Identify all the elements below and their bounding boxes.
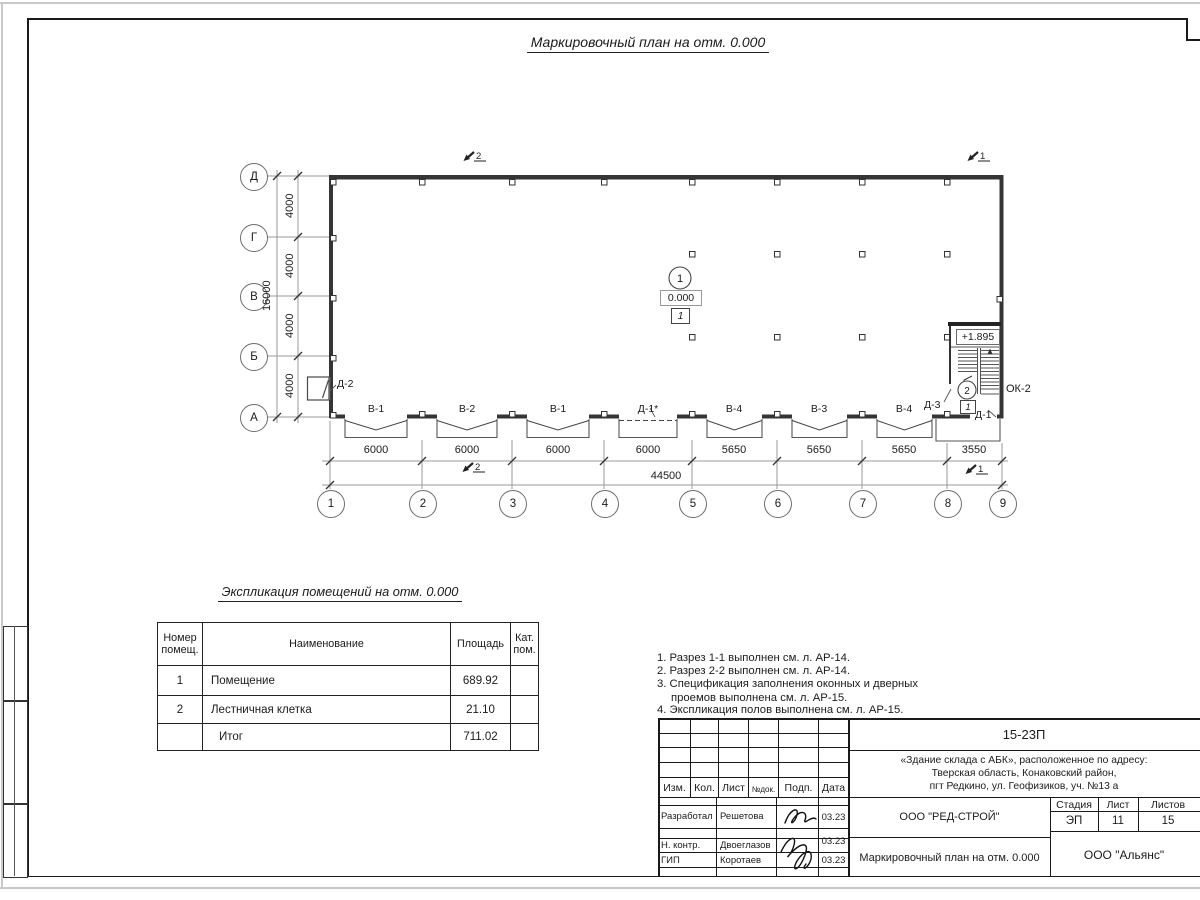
tb-name: Коротаев	[720, 855, 761, 866]
room1-elevation: 0.000	[660, 290, 702, 306]
dim-total-label: 44500	[636, 470, 696, 482]
tb-address-line1: «Здание склада с АБК», расположенное по …	[850, 755, 1198, 766]
table-row: 2 Лестничная клетка 21.10	[158, 696, 539, 724]
tb-sheets-value: 15	[1139, 815, 1197, 827]
opening-label: В-3	[789, 403, 849, 415]
cell-number: 2	[158, 696, 203, 724]
svg-text:2: 2	[476, 151, 481, 162]
cell-name: Лестничная клетка	[203, 696, 451, 724]
tb-address-line2: Тверская область, Конаковский район,	[850, 768, 1198, 779]
svg-text:2: 2	[964, 386, 970, 397]
drawing-sheet: Маркировочный план на отм. 0.000	[0, 0, 1200, 900]
tb-col-podp: Подп.	[779, 782, 818, 794]
cell-number	[158, 724, 203, 751]
axis-bubble-2: 2	[409, 490, 437, 518]
door-label-d1: Д-1	[975, 409, 991, 421]
room2-floor-tag: 1	[960, 400, 976, 414]
cell-area: 711.02	[451, 724, 511, 751]
opening-label: Д-1*	[618, 403, 678, 415]
axis-bubble-a: А	[240, 404, 268, 432]
axis-bubble-4: 4	[591, 490, 619, 518]
svg-text:1: 1	[677, 273, 683, 285]
svg-text:1: 1	[978, 464, 983, 475]
explication-title: Экспликация помещений на отм. 0.000	[165, 583, 515, 601]
tb-org-design: ООО "РЕД-СТРОЙ"	[850, 811, 1049, 823]
tb-sheet-label: Лист	[1099, 799, 1137, 811]
table-row: 1 Помещение 689.92	[158, 666, 539, 696]
column-header: Кат. пом.	[511, 623, 539, 666]
door-label-d2: Д-2	[337, 378, 353, 390]
axis-bubble-b: Б	[240, 343, 268, 371]
dim-label: 5650	[874, 444, 934, 456]
cell-area: 21.10	[451, 696, 511, 724]
tb-col-ndok: №док.	[749, 785, 778, 794]
note-item: 2. Разрез 2-2 выполнен см. л. АР-14.	[657, 665, 933, 679]
dimension-ticks	[273, 172, 1006, 489]
axis-bubble-3: 3	[499, 490, 527, 518]
cell-area: 689.92	[451, 666, 511, 696]
dim-label: 4000	[284, 356, 296, 416]
dim-label: 3550	[944, 444, 1004, 456]
dim-label: 6000	[437, 444, 497, 456]
tb-date: 03.23	[819, 855, 848, 866]
window-label-ok2: ОК-2	[1006, 383, 1031, 395]
signatures	[781, 810, 816, 869]
dim-label: 6000	[618, 444, 678, 456]
cell-category	[511, 666, 539, 696]
tb-org-customer: ООО "Альянс"	[1051, 848, 1197, 862]
room1-floor-tag: 1	[671, 308, 690, 324]
window-symbols	[345, 421, 932, 431]
dim-label: 6000	[528, 444, 588, 456]
tb-address-line3: пгт Редкино, ул. Геофизиков, уч. №13 а	[850, 781, 1198, 792]
axis-bubble-5: 5	[679, 490, 707, 518]
tb-role: Н. контр.	[661, 840, 700, 851]
dim-label: 5650	[789, 444, 849, 456]
note-item: 3. Спецификация заполнения оконных и две…	[657, 678, 933, 705]
cell-category	[511, 724, 539, 751]
tb-date: 03.23	[819, 812, 848, 823]
explication-title-text: Экспликация помещений на отм. 0.000	[218, 584, 463, 602]
dim-label: 4000	[284, 236, 296, 296]
svg-text:1: 1	[980, 151, 985, 162]
door-label-d3: Д-3	[924, 399, 940, 411]
tb-stage-label: Стадия	[1051, 799, 1097, 811]
axis-bubble-1: 1	[317, 490, 345, 518]
tb-role: ГИП	[661, 855, 680, 866]
axis-bubble-9: 9	[989, 490, 1017, 518]
tb-stage-value: ЭП	[1051, 815, 1097, 827]
tb-col-data: Дата	[819, 782, 848, 794]
axis-bubble-8: 8	[934, 490, 962, 518]
cell-category	[511, 696, 539, 724]
dim-total-label: 16000	[261, 256, 273, 336]
column-header: Номер помещ.	[158, 623, 203, 666]
tb-col-izm: Изм.	[659, 782, 690, 794]
tb-sheets-label: Листов	[1139, 799, 1197, 811]
section-marks: 2 1 2 1	[463, 151, 991, 475]
cell-name: Помещение	[203, 666, 451, 696]
tb-doc-number: 15-23П	[850, 727, 1198, 742]
column-header: Площадь	[451, 623, 511, 666]
axis-bubble-7: 7	[849, 490, 877, 518]
tb-name: Двоеглазов	[720, 840, 771, 851]
tb-drawing-title: Маркировочный план на отм. 0.000	[850, 852, 1049, 864]
tb-col-kol: Кол.	[691, 782, 718, 794]
table-row: Итог 711.02	[158, 724, 539, 751]
dim-label: 5650	[704, 444, 764, 456]
note-item: 1. Разрез 1-1 выполнен см. л. АР-14.	[657, 652, 933, 666]
dim-label: 4000	[284, 296, 296, 356]
axis-bubble-6: 6	[764, 490, 792, 518]
dim-label: 4000	[284, 176, 296, 236]
tb-role: Разработал	[661, 811, 713, 822]
dim-label: 6000	[346, 444, 406, 456]
cell-number: 1	[158, 666, 203, 696]
tb-date: 03.23	[819, 836, 848, 847]
column-header: Наименование	[203, 623, 451, 666]
dimension-lines	[267, 170, 1008, 489]
opening-label: В-2	[437, 403, 497, 415]
cell-name: Итог	[203, 724, 451, 751]
opening-label: В-1	[346, 403, 406, 415]
note-item: 4. Экспликация полов выполнена см. л. АР…	[657, 704, 933, 718]
axis-bubble-d: Д	[240, 163, 268, 191]
tb-sheet-value: 11	[1099, 815, 1137, 827]
axis-bubble-g: Г	[240, 224, 268, 252]
tb-col-list: Лист	[719, 782, 748, 794]
room-tag-numbers: 1 2	[677, 273, 970, 397]
vestibule-d2	[308, 377, 330, 400]
opening-label: В-1	[528, 403, 588, 415]
room-tags	[669, 267, 976, 399]
explication-table: Номер помещ. Наименование Площадь Кат. п…	[157, 622, 539, 751]
opening-label: В-4	[704, 403, 764, 415]
room2-elevation: +1.895	[956, 329, 1000, 345]
tb-name: Решетова	[720, 811, 764, 822]
svg-text:2: 2	[475, 462, 480, 473]
